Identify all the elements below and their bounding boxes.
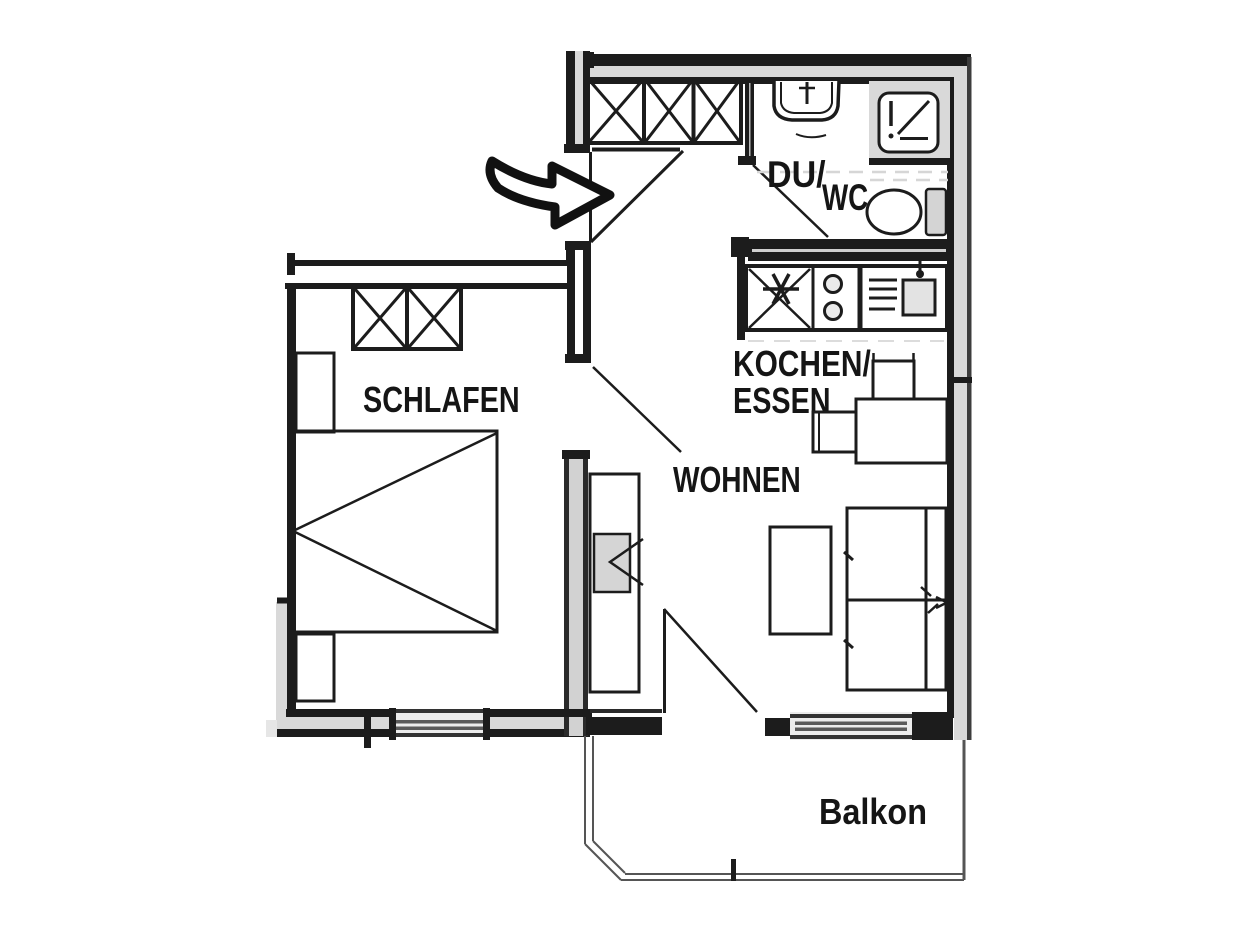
svg-text:WOHNEN: WOHNEN — [673, 460, 801, 500]
svg-text:WC: WC — [822, 176, 868, 218]
svg-text:ESSEN: ESSEN — [733, 380, 831, 421]
svg-text:DU/: DU/ — [767, 154, 826, 196]
svg-text:KOCHEN/: KOCHEN/ — [733, 344, 871, 384]
svg-text:Balkon: Balkon — [819, 792, 927, 832]
svg-text:SCHLAFEN: SCHLAFEN — [363, 379, 520, 420]
